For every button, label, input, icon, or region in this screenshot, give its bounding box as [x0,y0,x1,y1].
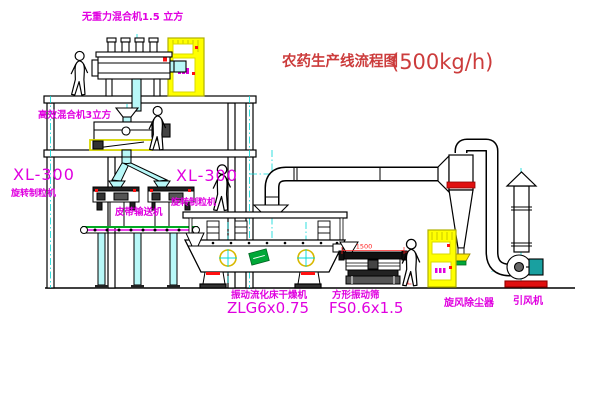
person-figure-1 [71,51,88,95]
exhaust-stack [507,172,536,252]
label-cyclone: 旋风除尘器 [443,296,495,309]
control-cabinet-right [428,230,456,287]
person-figure-4 [402,239,420,285]
exhaust-duct [254,156,449,217]
fluid-bed-dryer [183,212,347,288]
label-fan: 引风机 [513,294,543,307]
vibrating-sieve [339,242,407,284]
diagram-title: 农药生产线流程图 [281,52,398,70]
label-belt-conveyor: 皮带输送机 [114,206,163,218]
induced-draft-fan [505,255,547,287]
sieve-width-dim: 1500 [356,243,373,251]
label-granulator-mid-model: XL-300 [176,166,238,185]
label-wet-mixer: 高效混合机3立方 [38,109,112,121]
belt-conveyor [81,227,200,289]
label-gravity-mixer: 无重力混合机1.5 立方 [81,10,183,23]
label-granulator-left-model: XL-300 [13,165,75,184]
label-dryer-model: ZLG6x0.75 [227,299,309,317]
label-granulator-mid: 旋转制粒机 [170,196,216,208]
cyclone-separator [447,145,518,270]
y-chute [112,157,167,181]
diagram-title-capacity: (500kg/h) [391,50,493,74]
cad-flow-diagram: 1500 541 [0,0,600,403]
label-granulator-left: 旋转制粒机 [10,187,56,199]
rotary-granulator-a [93,181,139,227]
label-sieve-model: FS0.6x1.5 [329,299,403,317]
drawing-canvas: 1500 541 [0,0,600,403]
